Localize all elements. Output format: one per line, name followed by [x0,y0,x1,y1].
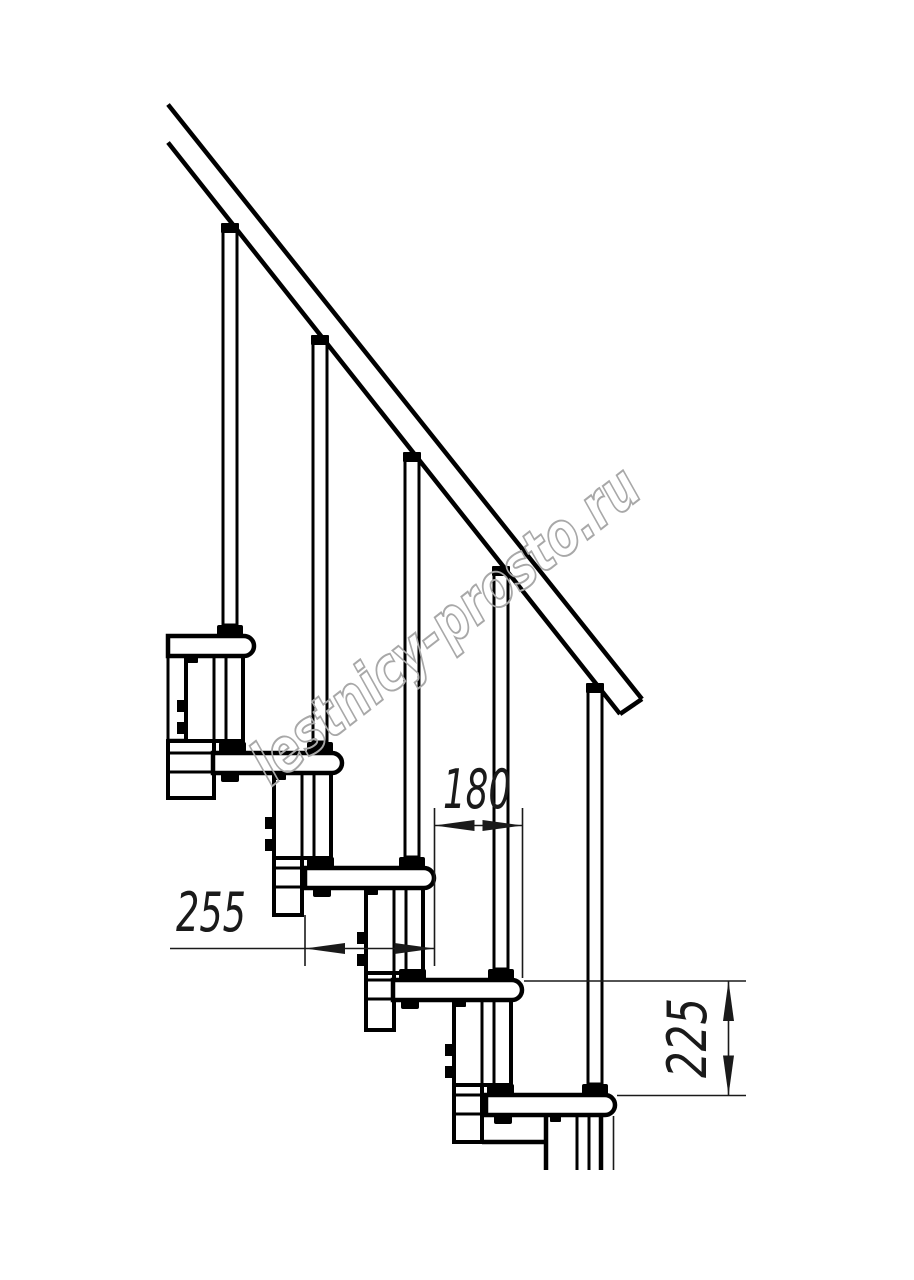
dimension-label-255: 255 [176,881,246,944]
dimension-label-225: 225 [656,998,719,1078]
tread-5 [486,1095,615,1124]
dimension-label-180: 180 [443,758,511,821]
dimension-225: 225 [524,981,746,1096]
baluster-5 [582,683,608,1095]
baluster-bottom-cap [217,625,243,636]
module-5 [546,1114,614,1170]
staircase-technical-drawing: 180 255 225 lestnicy-prosto.ru [0,0,914,1280]
baluster-bottom-cap [582,1084,608,1095]
arrowhead-down [723,1056,734,1096]
baluster-bottom-cap [488,969,514,980]
arrowhead-left [305,943,345,954]
drawing-page: 180 255 225 lestnicy-prosto.ru [0,0,914,1280]
baluster-bottom-cap [399,857,425,868]
arrowhead-up [723,981,734,1021]
arrowhead-left [435,820,475,831]
baluster-1 [217,223,243,636]
